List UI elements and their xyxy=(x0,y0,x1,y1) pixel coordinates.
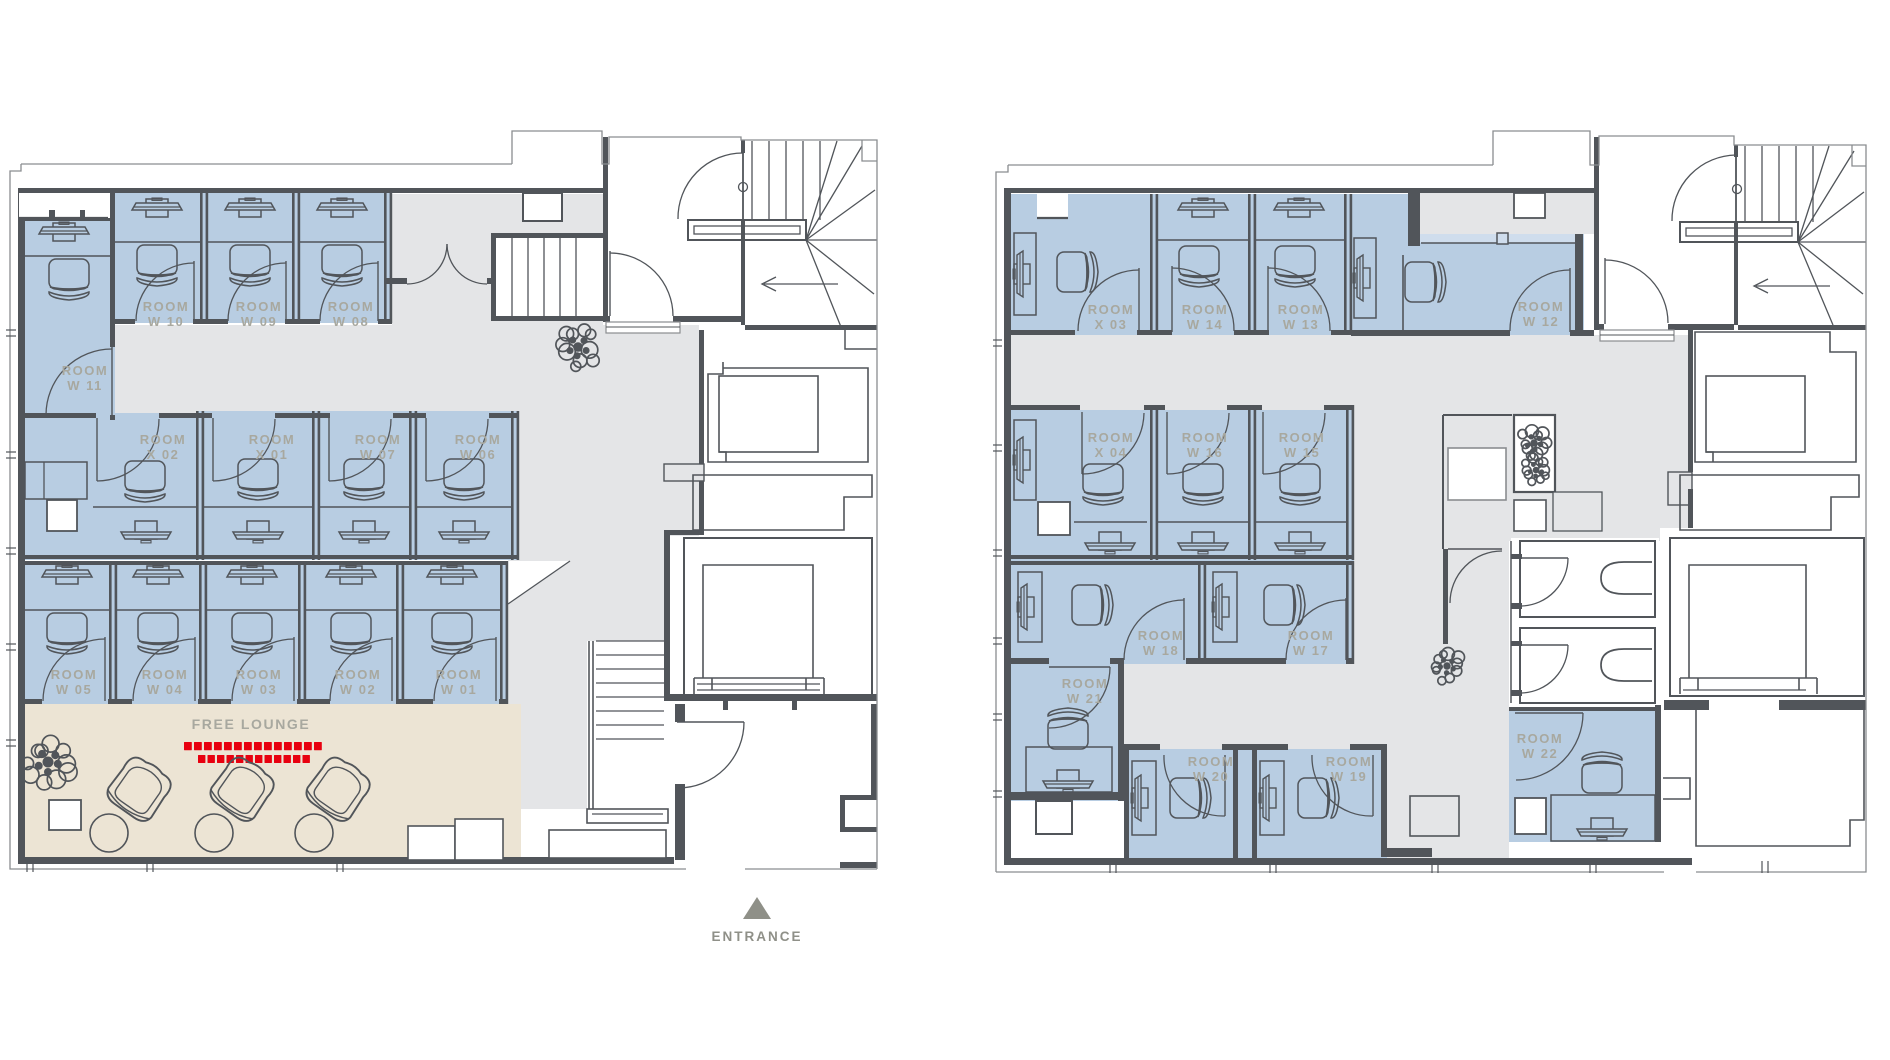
svg-text:ROOM: ROOM xyxy=(1326,754,1372,769)
svg-text:W 11: W 11 xyxy=(67,378,103,393)
svg-text:W 01: W 01 xyxy=(441,682,477,697)
svg-text:W 04: W 04 xyxy=(147,682,183,697)
svg-text:ROOM: ROOM xyxy=(328,299,374,314)
svg-text:W 20: W 20 xyxy=(1193,769,1229,784)
svg-text:W 08: W 08 xyxy=(333,314,369,329)
svg-text:W 06: W 06 xyxy=(460,447,496,462)
svg-text:W 10: W 10 xyxy=(148,314,184,329)
svg-text:W 03: W 03 xyxy=(241,682,277,697)
svg-text:ROOM: ROOM xyxy=(1517,731,1563,746)
svg-text:W 12: W 12 xyxy=(1523,314,1559,329)
svg-text:W 21: W 21 xyxy=(1067,691,1103,706)
svg-text:X 02: X 02 xyxy=(147,447,180,462)
svg-text:W 22: W 22 xyxy=(1522,746,1558,761)
svg-text:ROOM: ROOM xyxy=(1182,302,1228,317)
svg-text:ROOM: ROOM xyxy=(1062,676,1108,691)
svg-text:W 13: W 13 xyxy=(1283,317,1319,332)
svg-text:ROOM: ROOM xyxy=(1182,430,1228,445)
svg-text:ROOM: ROOM xyxy=(436,667,482,682)
svg-text:ROOM: ROOM xyxy=(1278,302,1324,317)
svg-text:ROOM: ROOM xyxy=(1518,299,1564,314)
svg-text:W 14: W 14 xyxy=(1187,317,1223,332)
svg-text:ROOM: ROOM xyxy=(1188,754,1234,769)
svg-text:ROOM: ROOM xyxy=(142,667,188,682)
svg-text:ENTRANCE: ENTRANCE xyxy=(711,929,802,944)
svg-text:ROOM: ROOM xyxy=(236,299,282,314)
svg-text:X 03: X 03 xyxy=(1095,317,1128,332)
svg-text:W 15: W 15 xyxy=(1284,445,1320,460)
svg-text:ROOM: ROOM xyxy=(62,363,108,378)
svg-text:W 07: W 07 xyxy=(360,447,396,462)
svg-text:ROOM: ROOM xyxy=(249,432,295,447)
svg-text:W 05: W 05 xyxy=(56,682,92,697)
svg-text:W 19: W 19 xyxy=(1331,769,1367,784)
svg-text:FREE LOUNGE: FREE LOUNGE xyxy=(192,716,311,732)
svg-text:ROOM: ROOM xyxy=(355,432,401,447)
svg-text:W 17: W 17 xyxy=(1293,643,1329,658)
svg-text:ROOM: ROOM xyxy=(1088,302,1134,317)
svg-text:X 01: X 01 xyxy=(256,447,289,462)
svg-text:W 18: W 18 xyxy=(1143,643,1179,658)
svg-text:ROOM: ROOM xyxy=(1288,628,1334,643)
svg-text:ROOM: ROOM xyxy=(236,667,282,682)
svg-text:ROOM: ROOM xyxy=(1138,628,1184,643)
svg-text:ROOM: ROOM xyxy=(140,432,186,447)
svg-text:ROOM: ROOM xyxy=(143,299,189,314)
svg-text:ROOM: ROOM xyxy=(1088,430,1134,445)
svg-text:X 04: X 04 xyxy=(1095,445,1128,460)
svg-text:W 16: W 16 xyxy=(1187,445,1223,460)
svg-text:ROOM: ROOM xyxy=(335,667,381,682)
svg-text:W 09: W 09 xyxy=(241,314,277,329)
svg-text:ROOM: ROOM xyxy=(455,432,501,447)
svg-text:ROOM: ROOM xyxy=(1279,430,1325,445)
svg-text:W 02: W 02 xyxy=(340,682,376,697)
svg-text:ROOM: ROOM xyxy=(51,667,97,682)
